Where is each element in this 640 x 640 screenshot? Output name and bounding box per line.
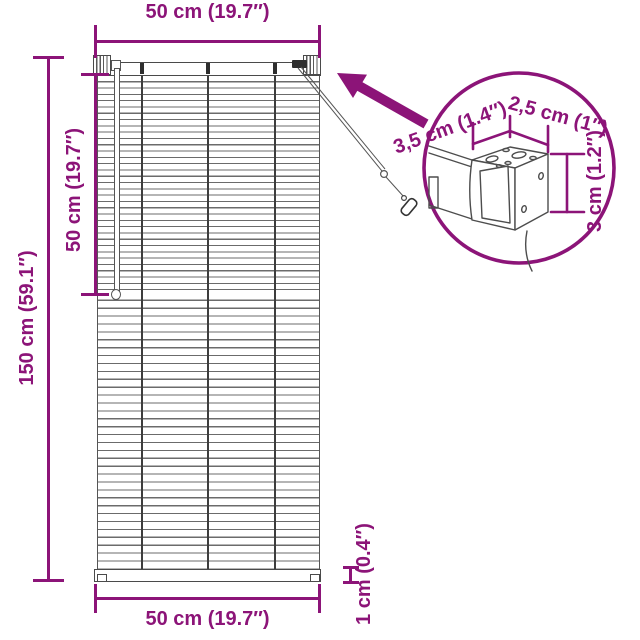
cord-tassel [400,196,418,217]
bracket-height-label: 3 cm (1.2″) [583,81,607,281]
bottom-width-label: 50 cm (19.7″) [95,607,320,631]
bottom-rail-height-label: 1 cm (0.4″) [352,464,376,640]
zoom-arrow-icon [337,73,426,124]
product-dimension-diagram: 50 cm (19.7″) 150 cm (59.1″) 50 cm (19.7… [0,0,640,640]
total-height-label: 150 cm (59.1″) [15,208,39,428]
top-width-label: 50 cm (19.7″) [95,0,320,24]
upper-height-label: 50 cm (19.7″) [62,80,86,300]
